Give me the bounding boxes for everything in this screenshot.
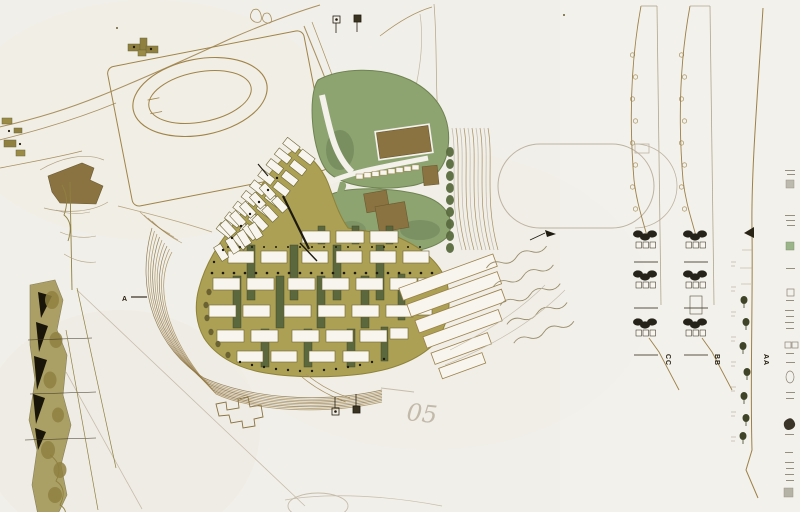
section-tree-mass (647, 230, 657, 237)
tree-dot (323, 246, 325, 248)
tree-blob (740, 342, 747, 350)
tree-dot (343, 272, 346, 275)
tree-blob (446, 243, 454, 253)
housing-block (213, 278, 240, 290)
microtext-line (787, 174, 795, 175)
microtext-line (786, 362, 795, 363)
tree-blob (446, 159, 454, 169)
tree-dot (233, 272, 236, 275)
tree-blob (743, 414, 750, 422)
tree-dot (407, 246, 409, 248)
section-building (650, 242, 656, 248)
housing-block (237, 351, 263, 362)
tree-dot (239, 361, 241, 363)
housing-block (336, 231, 364, 243)
housing-block (403, 251, 429, 263)
section-building (700, 282, 706, 288)
tree-dot (299, 246, 301, 248)
tree-blob (744, 368, 751, 376)
tree-dot (244, 272, 247, 275)
tree-dot (398, 272, 401, 275)
tree-dot (321, 272, 324, 275)
microtext-line (786, 328, 794, 329)
building-mass (54, 462, 67, 478)
tree-dot (347, 246, 349, 248)
tree-dot (251, 246, 253, 248)
tree-dot (213, 261, 215, 263)
microtext-line (785, 462, 794, 463)
tree-blob (215, 341, 220, 347)
symbol-square-filled (354, 15, 361, 22)
tree-dot (222, 272, 225, 275)
tree-blob (446, 183, 454, 193)
tree-dot (409, 272, 412, 275)
tree-dot (311, 370, 313, 372)
tree-dot (288, 272, 291, 275)
housing-block (309, 351, 335, 362)
tree-dot (310, 272, 313, 275)
tree-dot (255, 272, 258, 275)
tree-dot (249, 213, 251, 215)
tree-dot (266, 272, 269, 275)
housing-block (343, 351, 369, 362)
section-building (686, 242, 692, 248)
tree-dot (287, 369, 289, 371)
tree-dot (211, 272, 214, 275)
tree-dot (371, 246, 373, 248)
tree-dot (376, 272, 379, 275)
microtext-line (786, 353, 794, 354)
building-mass (44, 372, 57, 389)
tree-dot (431, 272, 434, 275)
section-building (700, 330, 706, 336)
section-label-bb: BB (713, 354, 720, 366)
section-tree-mass (647, 318, 657, 325)
microtext-line (786, 468, 794, 469)
housing-block (228, 251, 254, 263)
tree-dot (239, 246, 241, 248)
section-building (693, 330, 699, 336)
sports-field (376, 126, 431, 159)
tree-blob (206, 289, 211, 295)
section-tree-mass (697, 270, 707, 277)
tree-blob (203, 302, 208, 308)
legend-swatch-green (786, 242, 794, 250)
housing-block (318, 305, 345, 317)
microtext-line (786, 316, 794, 317)
tree-dot (323, 369, 325, 371)
housing-block (284, 305, 311, 317)
tree-dot (419, 246, 421, 248)
tree-blob (204, 315, 209, 321)
survey-dot (116, 27, 118, 29)
housing-block (322, 278, 349, 290)
section-building (693, 282, 699, 288)
tree-dot (258, 201, 260, 203)
microtext-line (786, 300, 794, 301)
tree-dot (299, 272, 302, 275)
tree-dot (395, 246, 397, 248)
section-building (650, 330, 656, 336)
housing-block (292, 330, 319, 342)
section-tree-mass (647, 270, 657, 277)
pavilion-block (372, 171, 379, 176)
pavilion-block (396, 168, 403, 173)
tree-blob (446, 195, 454, 205)
microtext-line (785, 434, 794, 435)
section-building (686, 282, 692, 288)
tree-dot (371, 361, 373, 363)
legend-swatch-gray-bottom (784, 488, 793, 497)
tree-blob (446, 219, 454, 229)
microtext-line (786, 268, 795, 269)
section-label-aa: AA (762, 354, 769, 366)
tree-blob (446, 231, 454, 241)
section-building (643, 282, 649, 288)
tree-blob (446, 207, 454, 217)
tree-dot (263, 366, 265, 368)
housing-block (247, 278, 274, 290)
tree-dot (420, 272, 423, 275)
microtext-line (786, 398, 794, 399)
section-building (636, 242, 642, 248)
housing-block (326, 330, 353, 342)
tree-dot (227, 246, 229, 248)
tree-dot (359, 246, 361, 248)
tree-dot (332, 272, 335, 275)
housing-block (352, 305, 379, 317)
survey-dot (563, 14, 565, 16)
microtext-line (785, 474, 794, 475)
tree-dot (231, 237, 233, 239)
section-tree-mass (697, 230, 707, 237)
tree-blob (446, 171, 454, 181)
housing-block (302, 251, 328, 263)
housing-block (271, 351, 297, 362)
planting-strip (276, 276, 284, 328)
tree-blob (208, 329, 213, 335)
tree-dot (359, 364, 361, 366)
marker-label-a: A (122, 296, 127, 303)
tree-blob (741, 392, 748, 400)
housing-block (261, 251, 287, 263)
section-building (643, 330, 649, 336)
tree-dot (240, 225, 242, 227)
microtext-line (785, 452, 793, 453)
housing-block (288, 278, 315, 290)
tree-blob (225, 352, 230, 358)
tree-blob (741, 296, 748, 304)
building-mass (48, 487, 62, 503)
section-building (643, 242, 649, 248)
tree-dot (335, 246, 337, 248)
housing-block (209, 305, 236, 317)
tree-dot (383, 246, 385, 248)
tree-dot (347, 366, 349, 368)
tree-dot (267, 189, 269, 191)
site-plan-canvas: 05 A CC BB AA (0, 0, 800, 512)
tree-dot (387, 272, 390, 275)
building-mass (50, 332, 63, 348)
site-plan-sheet: 05 A CC BB AA (0, 0, 800, 512)
section-tree-mass (697, 318, 707, 325)
housing-block (251, 330, 278, 342)
tree-dot (222, 249, 224, 251)
tree-dot (311, 246, 313, 248)
building-mass (45, 291, 59, 309)
pavilion-block (404, 166, 411, 171)
pavilion-block (412, 165, 419, 170)
symbol-square-filled (353, 406, 360, 413)
housing-block (390, 328, 408, 339)
microtext-line (786, 392, 795, 393)
microtext-line (786, 480, 794, 481)
tree-dot (287, 246, 289, 248)
tree-dot (277, 272, 280, 275)
section-building (636, 330, 642, 336)
housing-block (360, 330, 387, 342)
tree-dot (263, 246, 265, 248)
housing-block (356, 278, 383, 290)
section-building (686, 330, 692, 336)
tree-dot (275, 368, 277, 370)
pencil-note: 05 (405, 398, 438, 429)
building-mass (41, 441, 55, 459)
housing-block (370, 231, 398, 243)
microtext-line (787, 225, 795, 226)
tree-blob (740, 432, 747, 440)
section-building (693, 242, 699, 248)
housing-block (243, 305, 270, 317)
tree-dot (365, 272, 368, 275)
tree-dot (335, 368, 337, 370)
microtext-line (785, 170, 795, 171)
housing-block (217, 330, 244, 342)
microtext-line (785, 322, 794, 323)
section-building (700, 242, 706, 248)
legend-swatch-gray-top (786, 180, 794, 188)
tree-dot (354, 272, 357, 275)
tree-dot (383, 358, 385, 360)
building-mass (52, 408, 64, 423)
housing-block (370, 251, 396, 263)
section-label-cc: CC (664, 354, 671, 366)
tree-dot (251, 364, 253, 366)
pavilion-block (364, 173, 371, 178)
pavilion-block (356, 174, 363, 179)
housing-block (336, 251, 362, 263)
microtext-line (785, 310, 794, 311)
tree-dot (299, 370, 301, 372)
section-building (650, 282, 656, 288)
pavilion-block (380, 170, 387, 175)
planting-strip (290, 245, 298, 300)
microtext-line (786, 220, 795, 221)
tree-blob (446, 147, 454, 157)
pavilion-block (388, 169, 395, 174)
park-tree-row (446, 147, 454, 253)
microtext-line (785, 215, 795, 216)
section-building (636, 282, 642, 288)
tree-dot (275, 246, 277, 248)
tree-blob (743, 318, 750, 326)
tree-dot (276, 177, 278, 179)
